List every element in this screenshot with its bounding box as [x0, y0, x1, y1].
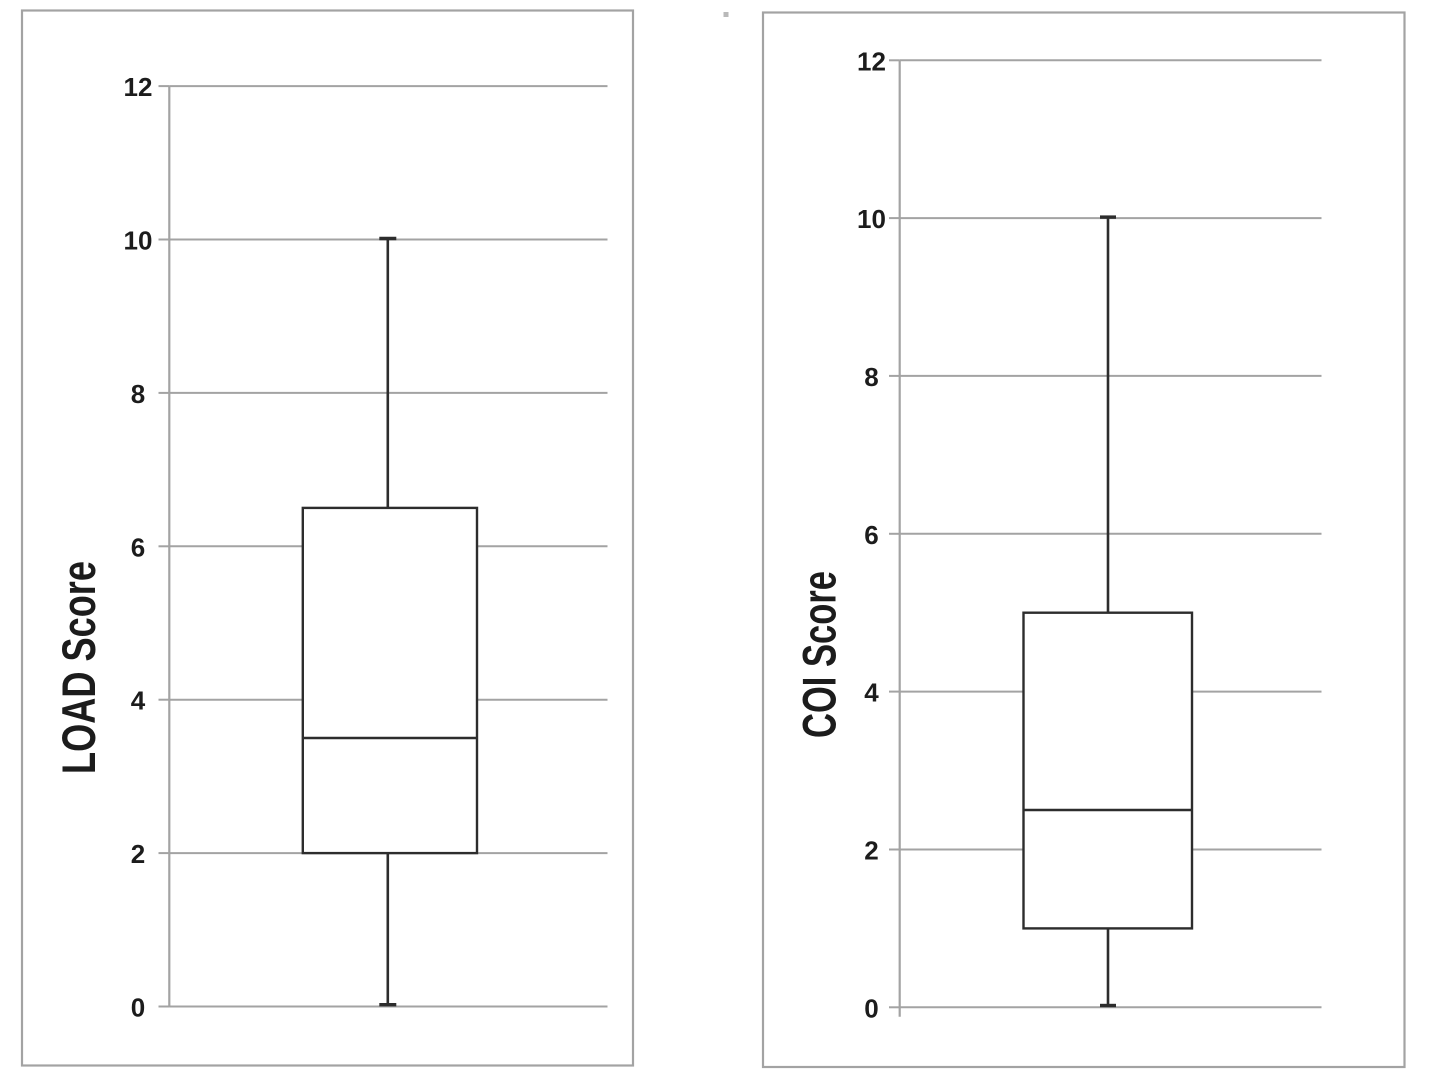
svg-text:8: 8 [864, 362, 878, 392]
svg-text:2: 2 [864, 836, 878, 866]
svg-text:4: 4 [131, 686, 146, 716]
svg-text:10: 10 [124, 226, 153, 256]
svg-text:LOAD Score: LOAD Score [52, 561, 105, 774]
svg-text:0: 0 [864, 993, 878, 1023]
svg-text:12: 12 [857, 46, 886, 76]
svg-text:2: 2 [131, 839, 145, 869]
svg-text:8: 8 [131, 379, 145, 409]
svg-text:0: 0 [131, 993, 145, 1023]
svg-text:12: 12 [124, 72, 153, 102]
svg-text:6: 6 [864, 520, 878, 550]
svg-text:COI Score: COI Score [793, 571, 846, 738]
svg-text:10: 10 [857, 204, 886, 234]
svg-text:4: 4 [864, 678, 879, 708]
svg-text:6: 6 [131, 532, 145, 562]
